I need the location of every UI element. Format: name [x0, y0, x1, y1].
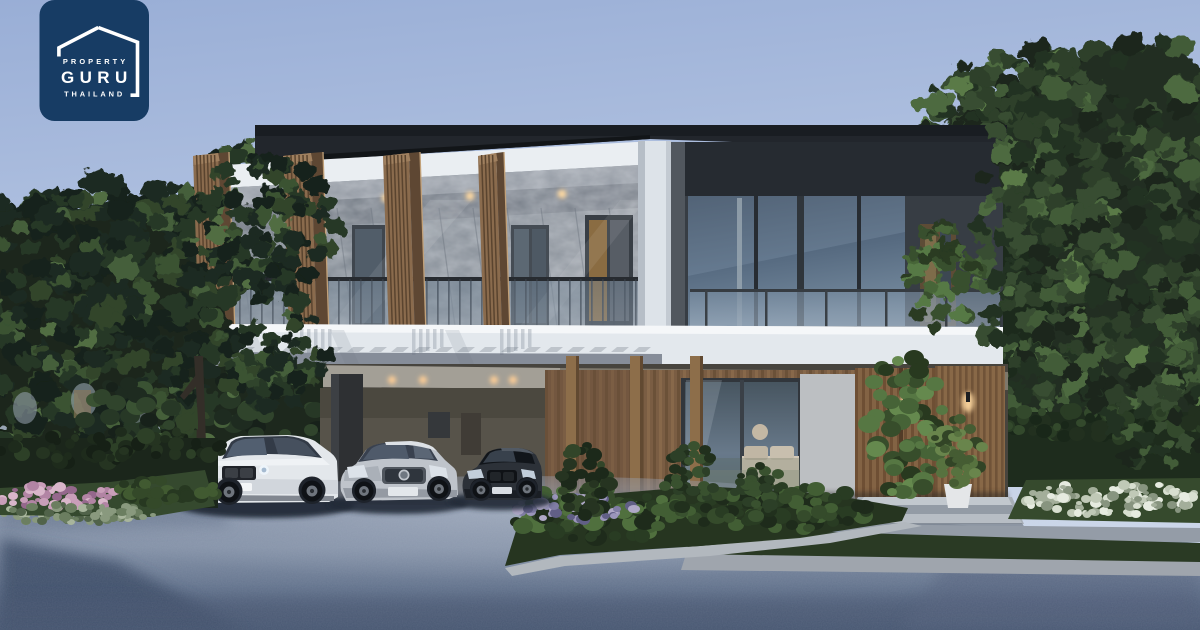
svg-text:PROPERTY: PROPERTY [63, 57, 128, 66]
svg-text:GURU: GURU [61, 68, 133, 87]
svg-text:THAILAND: THAILAND [64, 89, 125, 98]
